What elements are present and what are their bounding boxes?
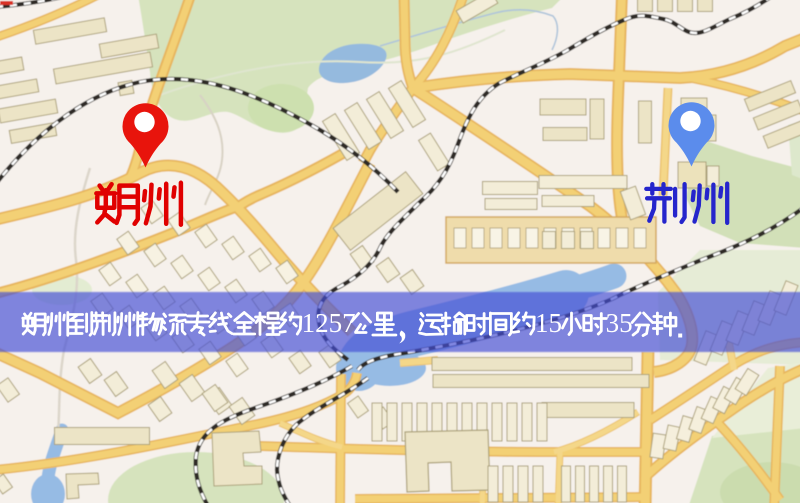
svg-text:1257: 1257 [302,308,356,338]
svg-text:35: 35 [606,308,633,338]
svg-text:15: 15 [535,308,562,338]
